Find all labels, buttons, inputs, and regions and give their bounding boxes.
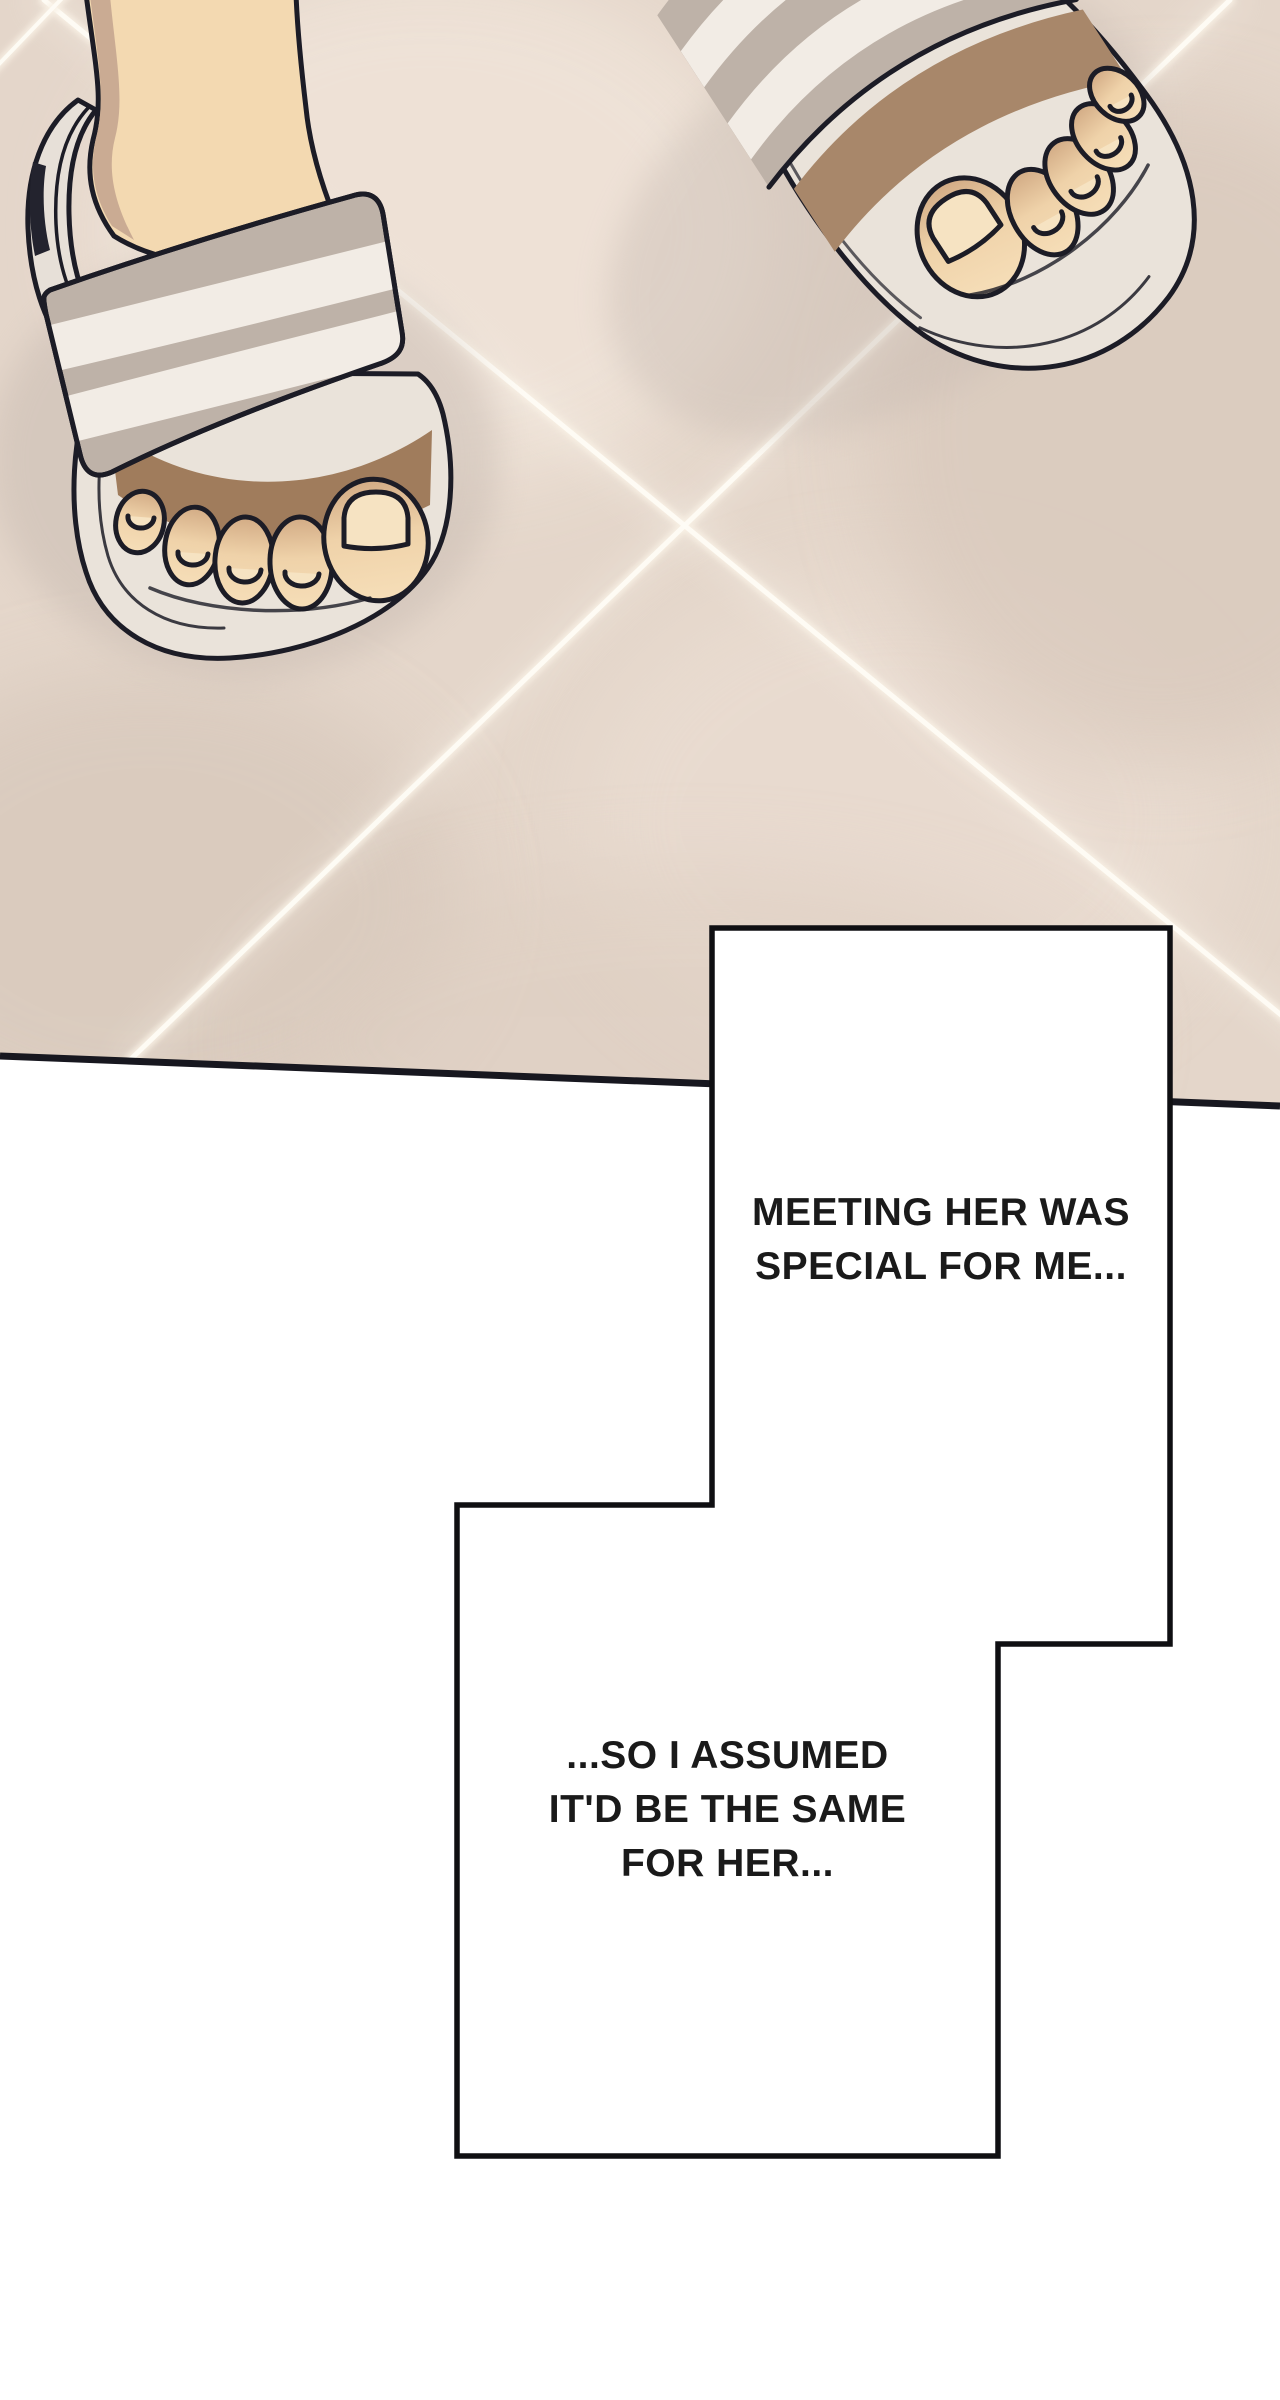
caption-2-line-2: IT'D BE THE SAME — [457, 1783, 998, 1837]
caption-box-1: MEETING HER WAS SPECIAL FOR ME... — [712, 1186, 1170, 1294]
caption-1-line-1: MEETING HER WAS — [712, 1186, 1170, 1240]
floor-artwork — [0, 0, 1280, 1130]
caption-2-line-3: FOR HER... — [457, 1837, 998, 1891]
comic-page: MEETING HER WAS SPECIAL FOR ME... ...SO … — [0, 0, 1280, 2400]
caption-2-line-1: ...SO I ASSUMED — [457, 1729, 998, 1783]
caption-box-2: ...SO I ASSUMED IT'D BE THE SAME FOR HER… — [457, 1729, 998, 1891]
caption-1-line-2: SPECIAL FOR ME... — [712, 1240, 1170, 1294]
